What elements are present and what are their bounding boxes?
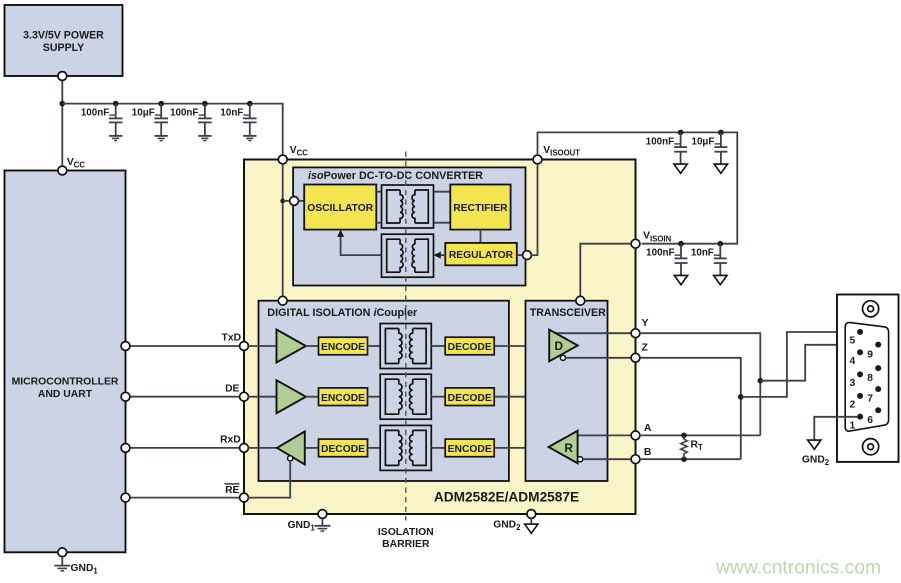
svg-text:OSCILLATOR: OSCILLATOR: [307, 203, 374, 214]
svg-text:3: 3: [850, 378, 856, 389]
svg-text:TxD: TxD: [222, 333, 241, 344]
svg-text:ADM2582E/ADM2587E: ADM2582E/ADM2587E: [434, 490, 579, 505]
svg-text:D: D: [555, 339, 564, 353]
svg-text:DE: DE: [225, 383, 239, 394]
svg-text:1: 1: [850, 420, 856, 431]
svg-text:RE: RE: [225, 485, 239, 496]
svg-text:www.cntronics.com: www.cntronics.com: [715, 558, 881, 579]
svg-text:B: B: [644, 446, 652, 458]
svg-text:6: 6: [867, 415, 873, 426]
svg-text:2: 2: [850, 400, 856, 411]
svg-text:DECODE: DECODE: [448, 393, 492, 404]
svg-text:10nF: 10nF: [691, 248, 714, 259]
svg-text:ENCODE: ENCODE: [321, 393, 365, 404]
svg-text:7: 7: [867, 394, 873, 405]
svg-text:A: A: [644, 422, 652, 434]
svg-text:isoPower DC-TO-DC CONVERTER: isoPower DC-TO-DC CONVERTER: [308, 170, 483, 182]
svg-text:3.3V/5V POWER: 3.3V/5V POWER: [23, 30, 104, 42]
svg-text:R: R: [564, 441, 573, 455]
svg-text:Z: Z: [642, 341, 649, 353]
svg-text:AND UART: AND UART: [38, 389, 93, 400]
svg-text:9: 9: [867, 349, 873, 360]
svg-text:MICROCONTROLLER: MICROCONTROLLER: [12, 377, 119, 388]
svg-text:100nF: 100nF: [170, 108, 198, 119]
svg-text:4: 4: [850, 356, 856, 367]
svg-text:100nF: 100nF: [81, 108, 109, 119]
svg-text:10μF: 10μF: [692, 136, 715, 147]
svg-text:ENCODE: ENCODE: [321, 342, 365, 353]
svg-text:ISOLATION: ISOLATION: [378, 527, 434, 538]
svg-text:100nF: 100nF: [646, 136, 674, 147]
svg-text:10μF: 10μF: [132, 108, 155, 119]
svg-text:8: 8: [867, 373, 873, 384]
svg-text:BARRIER: BARRIER: [382, 539, 430, 550]
svg-text:TRANSCEIVER: TRANSCEIVER: [530, 307, 606, 319]
svg-text:DIGITAL ISOLATION iCoupler: DIGITAL ISOLATION iCoupler: [267, 307, 418, 319]
svg-text:10nF: 10nF: [220, 108, 243, 119]
svg-text:SUPPLY: SUPPLY: [43, 42, 84, 54]
svg-text:RxD: RxD: [220, 435, 241, 446]
svg-text:DECODE: DECODE: [448, 342, 492, 353]
svg-text:DECODE: DECODE: [321, 444, 365, 455]
svg-text:RECTIFIER: RECTIFIER: [453, 203, 508, 214]
svg-text:ENCODE: ENCODE: [448, 444, 492, 455]
svg-text:100nF: 100nF: [646, 248, 674, 259]
svg-text:5: 5: [850, 336, 856, 347]
svg-text:Y: Y: [642, 317, 649, 329]
svg-text:REGULATOR: REGULATOR: [449, 250, 514, 261]
